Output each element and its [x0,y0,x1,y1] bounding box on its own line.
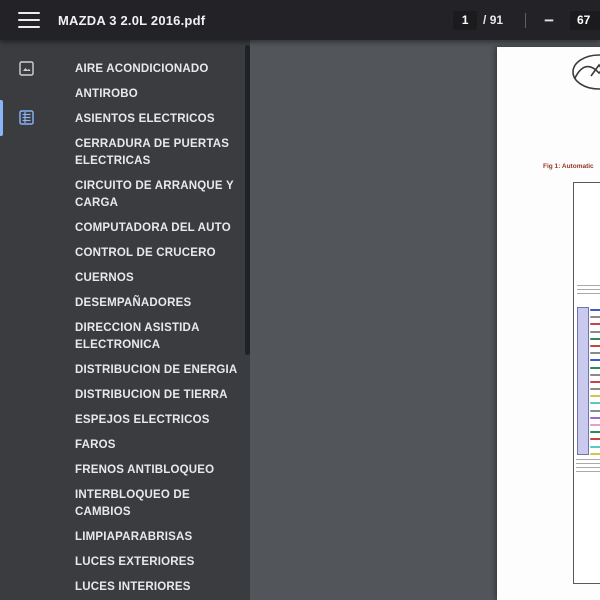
toolbar-separator [525,13,526,28]
wire-marks [590,308,600,456]
fine-print-text [576,459,600,472]
outline-item[interactable]: LIMPIAPARABRISAS [75,529,241,546]
outline-item[interactable]: LUCES EXTERIORES [75,554,241,571]
figure-caption: Fig 1: Automatic [543,163,600,170]
outline-item[interactable]: INTERBLOQUEO DE CAMBIOS [75,487,241,521]
thumbnails-tab[interactable] [19,61,34,76]
wire-mark [590,380,600,384]
zoom-out-icon[interactable]: − [544,12,554,29]
pdf-toolbar: MAZDA 3 2.0L 2016.pdf 1 / 91 − 67 [0,0,600,40]
outline-item[interactable]: CUERNOS [75,270,241,287]
wire-mark [590,366,600,370]
wire-mark [590,315,600,319]
outline-item[interactable]: FRENOS ANTIBLOQUEO [75,462,241,479]
wire-mark [590,452,600,456]
outline-item[interactable]: DISTRIBUCION DE ENERGIA [75,362,241,379]
wire-mark [590,387,600,391]
wire-mark [590,394,600,398]
wire-mark [590,437,600,441]
document-title: MAZDA 3 2.0L 2016.pdf [58,13,205,28]
outline-item[interactable]: DISTRIBUCION DE TIERRA [75,387,241,404]
outline-list: AIRE ACONDICIONADOANTIROBOASIENTOS ELECT… [75,61,241,600]
connector-block [577,307,589,455]
wire-mark [590,351,600,355]
wire-mark [590,337,600,341]
wire-mark [590,344,600,348]
wire-mark [590,373,600,377]
outline-item[interactable]: LUCES INTERIORES [75,579,241,596]
outline-item[interactable]: DIRECCION ASISTIDA ELECTRONICA [75,320,241,354]
outline-item[interactable]: CONTROL DE CRUCERO [75,245,241,262]
wire-mark [590,322,600,326]
outline-item[interactable]: ESPEJOS ELECTRICOS [75,412,241,429]
wire-mark [590,430,600,434]
outline-item[interactable]: CIRCUITO DE ARRANQUE Y CARGA [75,178,241,212]
sidebar-scrollbar-thumb[interactable] [245,45,250,355]
wire-mark [590,308,600,312]
wiring-diagram-frame [573,182,600,584]
wire-mark [590,401,600,405]
outline-icon [19,110,34,125]
menu-icon[interactable] [18,12,40,28]
outline-item[interactable]: CERRADURA DE PUERTAS ELECTRICAS [75,136,241,170]
viewer-area: Fig 1: Automatic [250,40,600,600]
pdf-page: Fig 1: Automatic [497,47,600,600]
outline-item[interactable]: FAROS [75,437,241,454]
outline-item[interactable]: AIRE ACONDICIONADO [75,61,241,78]
zoom-level-input[interactable]: 67 [570,11,600,30]
wire-mark [590,330,600,334]
page-number-input[interactable]: 1 [453,11,477,30]
page-total-label: / 91 [483,13,503,27]
wire-mark [590,423,600,427]
mazda-logo-icon [561,52,600,92]
outline-tab[interactable] [19,110,34,125]
outline-item[interactable]: DESEMPAÑADORES [75,295,241,312]
wire-mark [590,409,600,413]
outline-item[interactable]: ANTIROBO [75,86,241,103]
wire-mark [590,445,600,449]
outline-item[interactable]: COMPUTADORA DEL AUTO [75,220,241,237]
sidebar-panel: AIRE ACONDICIONADOANTIROBOASIENTOS ELECT… [0,40,250,600]
wire-mark [590,358,600,362]
thumbnails-icon [19,61,34,76]
outline-item[interactable]: ASIENTOS ELECTRICOS [75,111,241,128]
wire-mark [590,416,600,420]
active-tab-indicator [0,100,3,136]
fine-print-text [577,285,600,297]
